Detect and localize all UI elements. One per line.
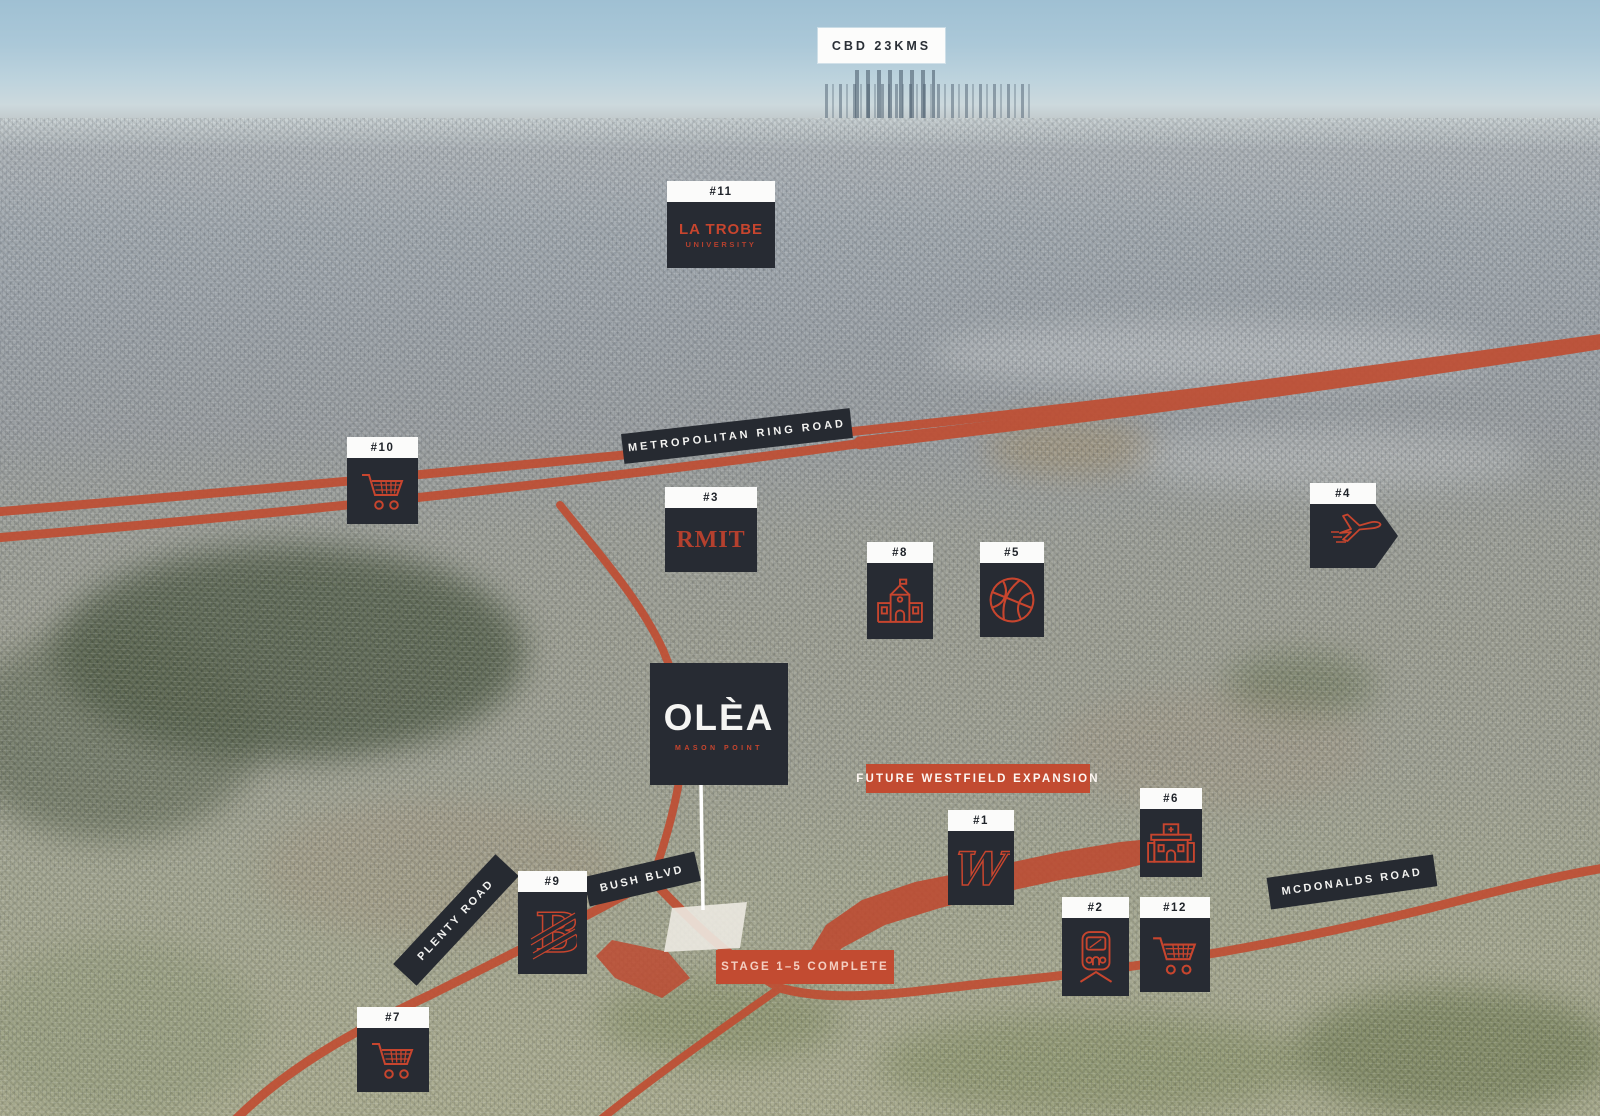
marker-number: #10	[347, 437, 418, 458]
marker-10-shopping: #10	[347, 437, 418, 524]
marker-number: #5	[980, 542, 1044, 563]
marker-4-airport: #4	[1310, 483, 1398, 568]
banner-stage-complete: STAGE 1–5 COMPLETE	[716, 950, 894, 984]
marker-6-hospital: #6	[1140, 788, 1202, 877]
marker-11-latrobe-university: #11 LA TROBE UNIVERSITY	[667, 181, 775, 268]
latrobe-logo-subtext: UNIVERSITY	[685, 240, 756, 249]
basketball-icon	[979, 567, 1044, 632]
marker-number: #2	[1062, 897, 1129, 918]
marker-number: #12	[1140, 897, 1210, 918]
marker-number: #7	[357, 1007, 429, 1028]
hospital-icon	[1146, 822, 1196, 864]
letter-b-logo-icon: B	[529, 902, 577, 964]
project-subtitle: MASON POINT	[675, 745, 763, 752]
south-branch-road	[600, 988, 780, 1116]
marker-7-shopping: #7	[357, 1007, 429, 1092]
marker-1-westfield: #1 W	[948, 810, 1014, 905]
marker-2-train-station: #2	[1062, 897, 1129, 996]
marker-number: #4	[1310, 483, 1376, 504]
marker-12-shopping: #12	[1140, 897, 1210, 992]
project-logo-tile: OLÈA MASON POINT	[650, 663, 788, 785]
marker-8-school: #8	[867, 542, 933, 639]
shopping-cart-icon	[360, 470, 406, 512]
svg-text:W: W	[952, 842, 1010, 896]
school-icon	[876, 578, 924, 624]
marker-number: #1	[948, 810, 1014, 831]
marker-number: #9	[518, 871, 587, 892]
shopping-cart-icon	[370, 1039, 416, 1081]
marker-number: #11	[667, 181, 775, 202]
marker-number: #6	[1140, 788, 1202, 809]
cbd-distance-badge: CBD 23KMS	[818, 28, 945, 63]
marker-number: #3	[665, 487, 757, 508]
aerial-map: CBD 23KMS METROPOLITAN RING ROAD BUSH BL…	[0, 0, 1600, 1116]
marker-number: #8	[867, 542, 933, 563]
ring-road-merged	[860, 342, 1600, 443]
project-name: OLÈA	[664, 697, 775, 739]
train-icon	[1075, 930, 1117, 984]
airplane-icon	[1329, 504, 1385, 552]
westfield-expansion-label: FUTURE WESTFIELD EXPANSION	[856, 773, 1100, 785]
site-connector-line	[701, 785, 703, 910]
marker-9-university-hill: #9 B	[518, 871, 587, 974]
westfield-logo-icon: W	[952, 839, 1010, 897]
banner-future-westfield-expansion: FUTURE WESTFIELD EXPANSION	[866, 764, 1090, 793]
marker-3-rmit: #3 RMIT	[665, 487, 757, 572]
latrobe-logo-text: LA TROBE	[679, 221, 763, 238]
stage-complete-label: STAGE 1–5 COMPLETE	[721, 961, 889, 973]
rmit-logo-text: RMIT	[676, 527, 745, 554]
development-site-patch	[664, 902, 747, 952]
marker-5-basketball: #5	[980, 542, 1044, 637]
shopping-cart-icon	[1151, 933, 1199, 977]
cbd-distance-label: CBD 23KMS	[832, 39, 931, 53]
